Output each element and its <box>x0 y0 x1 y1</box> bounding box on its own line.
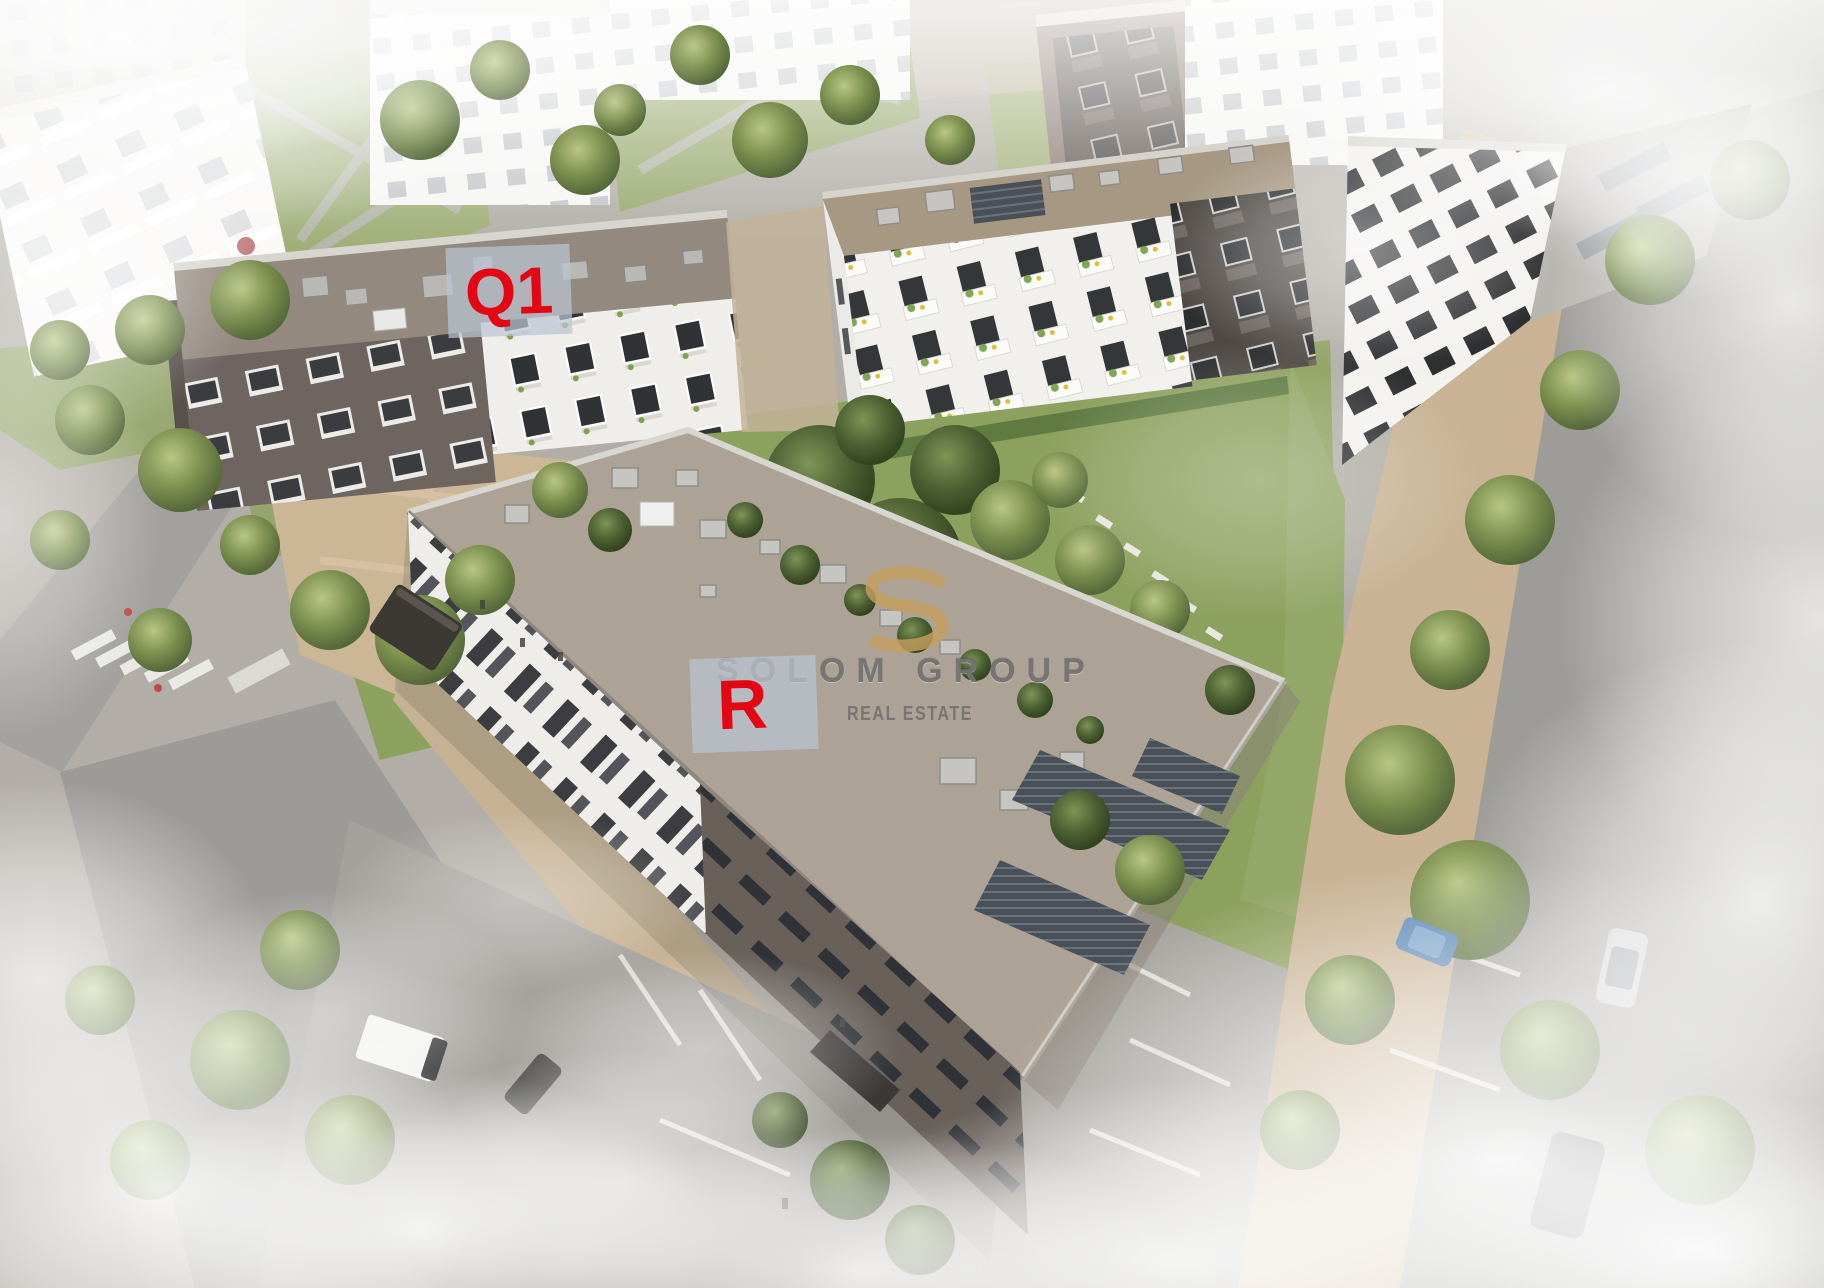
aerial-render-image: SOLOM GROUP REAL ESTATE Q1 R <box>0 0 1824 1288</box>
building-label-q1: Q1 <box>445 244 572 338</box>
courtyard-paving <box>726 206 840 432</box>
building-label-r-text: R <box>716 669 769 741</box>
rendered-scene <box>0 0 1824 1288</box>
building-label-q1-text: Q1 <box>464 256 554 325</box>
building-label-r: R <box>689 655 818 753</box>
